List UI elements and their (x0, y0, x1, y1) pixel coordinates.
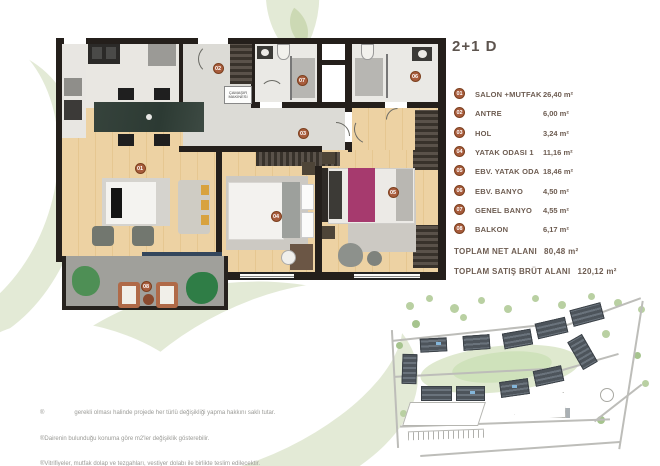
total-gross-value: 120,12 m² (578, 267, 617, 276)
sofa-pillow (201, 200, 209, 210)
total-net-area: TOPLAM NET ALANI80,48 m² (454, 247, 585, 256)
wall (348, 146, 352, 152)
disclaimer-line: ® gerekli olması halinde projede her tür… (40, 409, 275, 418)
legend-row: 03 HOL 3,24 m² (452, 127, 658, 139)
total-net-value: 80,48 m² (544, 247, 578, 256)
cabinet (64, 100, 82, 120)
site-plan (392, 290, 660, 466)
room-label: ANTRE (475, 109, 502, 118)
bar-chair (154, 134, 170, 146)
wall (315, 150, 322, 272)
room-number-badge: 08 (454, 223, 465, 234)
room-area: 4,55 m² (543, 206, 569, 215)
tv (111, 188, 122, 218)
room-number-badge: 06 (454, 185, 465, 196)
oven (64, 78, 82, 96)
brochure-page: ÇAMAŞIR MAKİNESİ (0, 0, 660, 466)
tree (642, 380, 649, 387)
building-pool-accent (436, 342, 441, 345)
room-label: BALKON (475, 225, 508, 234)
bar-chair (118, 134, 134, 146)
wall (179, 38, 183, 102)
room-number-badge: 04 (454, 146, 465, 157)
master-headboard (322, 168, 328, 222)
armchair (92, 226, 114, 246)
building (421, 386, 452, 401)
room-area: 18,46 m² (543, 167, 573, 176)
tree (602, 330, 610, 338)
shower-glass (290, 56, 292, 100)
room-label: YATAK ODASI 1 (475, 148, 534, 157)
total-gross-label: TOPLAM SATIŞ BRÜT ALANI (454, 267, 571, 276)
room-marker: 07 (297, 75, 308, 86)
master-bed-foot (396, 169, 413, 221)
bed1-pillow (301, 212, 314, 238)
desk-chair (281, 250, 296, 265)
unit-type-title: 2+1 D (452, 38, 497, 55)
bar-chair (118, 88, 134, 100)
sink-basin (418, 50, 427, 58)
balcony-plant (72, 266, 100, 296)
road (420, 441, 620, 456)
legend-row: 05 EBV. YATAK ODA 18,46 m² (452, 165, 658, 177)
legend-row: 07 GENEL BANYO 4,55 m² (452, 204, 658, 216)
toilet (277, 44, 290, 60)
tree (396, 342, 403, 349)
tree (460, 314, 467, 321)
disclaimer-line: ®Vitrifiyeler, mutfak dolap ve tezgahlar… (40, 460, 275, 466)
building (420, 337, 448, 352)
room-number-badge: 07 (454, 204, 465, 215)
bed1-blanket (282, 182, 300, 238)
master-wardrobe (415, 110, 438, 150)
kitchen-sink (92, 47, 102, 59)
wall (407, 102, 438, 108)
room-marker: 06 (410, 71, 421, 82)
road-island (514, 392, 566, 418)
bar-chair (154, 88, 170, 100)
total-gross-area: TOPLAM SATIŞ BRÜT ALANI120,12 m² (454, 267, 624, 276)
kitchen-sink (106, 47, 116, 59)
building-pool-accent (512, 385, 517, 388)
master-armchair (338, 243, 363, 267)
room-area: 6,00 m² (543, 109, 569, 118)
room-number-badge: 03 (454, 127, 465, 138)
room-label: GENEL BANYO (475, 206, 532, 215)
room-label: SALON +MUTFAK (475, 90, 542, 99)
tree (426, 295, 433, 302)
master-window (354, 272, 420, 280)
washer-label: ÇAMAŞIR MAKİNESİ (224, 86, 252, 104)
master-wardrobe (413, 225, 438, 268)
building (535, 317, 569, 340)
building (499, 378, 530, 398)
room-label: HOL (475, 129, 491, 138)
bed1-pillow (301, 184, 314, 210)
room-area: 4,50 m² (543, 187, 569, 196)
legend-row: 06 EBV. BANYO 4,50 m² (452, 185, 658, 197)
legend-row: 04 YATAK ODASI 1 11,16 m² (452, 146, 658, 158)
total-net-label: TOPLAM NET ALANI (454, 247, 537, 256)
armchair (132, 226, 154, 246)
building-pool-accent (470, 391, 475, 394)
legend-row: 08 BALKON 6,17 m² (452, 223, 658, 235)
room-marker: 01 (135, 163, 146, 174)
wall (282, 102, 352, 108)
roundabout (600, 388, 614, 402)
shower-glass (386, 54, 388, 98)
pouf (367, 251, 382, 266)
room-number-badge: 05 (454, 165, 465, 176)
tree (504, 305, 512, 313)
building (463, 334, 491, 351)
legend-row: 01 SALON +MUTFAK 26,40 m² (452, 88, 658, 100)
nightstand (302, 162, 315, 175)
bedroom1-window (240, 272, 294, 280)
wall (438, 38, 446, 280)
room-area: 3,24 m² (543, 129, 569, 138)
chair-cushion (122, 286, 136, 304)
room-area: 11,16 m² (543, 148, 573, 157)
toilet (361, 44, 374, 60)
nightstand (322, 226, 335, 239)
disclaimer-block: ® gerekli olması halinde projede her tür… (40, 392, 275, 466)
room-marker: 04 (271, 211, 282, 222)
fridge (148, 44, 176, 66)
wall (322, 60, 345, 65)
wall (352, 102, 385, 108)
room-marker: 02 (213, 63, 224, 74)
floor-plan: ÇAMAŞIR MAKİNESİ (56, 38, 446, 312)
tree (558, 301, 566, 309)
tree (588, 293, 595, 300)
shaft (322, 44, 345, 60)
wall (317, 38, 322, 102)
parking-lot (402, 402, 486, 426)
wall (251, 102, 260, 108)
parking-ticks (408, 429, 484, 441)
room-area: 26,40 m² (543, 90, 573, 99)
tree (412, 320, 420, 328)
sofa-pillow (201, 215, 209, 225)
entry-wardrobe (230, 44, 252, 84)
master-bed-runner (348, 168, 375, 222)
nightstand (322, 152, 335, 164)
building (569, 302, 604, 327)
building (401, 354, 417, 385)
legend-row: 02 ANTRE 6,00 m² (452, 107, 658, 119)
wall (345, 38, 352, 112)
island-sink (146, 114, 152, 120)
master-wardrobe (413, 150, 438, 170)
unit-legend: 2+1 D 01 SALON +MUTFAK 26,40 m² 02 ANTRE… (452, 38, 658, 288)
master-pillows (329, 171, 342, 219)
disclaimer-line: ®Dairenin bulunduğu konuma göre m2'ler d… (40, 435, 275, 444)
sink-basin (261, 49, 269, 56)
road (618, 301, 643, 449)
tree (450, 304, 459, 313)
tree (532, 295, 539, 302)
room-area: 6,17 m² (543, 225, 569, 234)
bathroom1-door-arc (260, 80, 284, 104)
room-marker: 05 (388, 187, 399, 198)
room-marker: 08 (141, 281, 152, 292)
room-marker: 03 (298, 128, 309, 139)
shower-mat (355, 58, 383, 96)
tree (406, 302, 414, 310)
room-number-badge: 01 (454, 88, 465, 99)
sofa-pillow (201, 185, 209, 195)
tree (478, 297, 485, 304)
balcony-table (143, 294, 154, 305)
room-label: EBV. BANYO (475, 187, 523, 196)
room-number-badge: 02 (454, 107, 465, 118)
room-label: EBV. YATAK ODA (475, 167, 539, 176)
tree (634, 352, 641, 359)
chair-cushion (160, 286, 174, 304)
